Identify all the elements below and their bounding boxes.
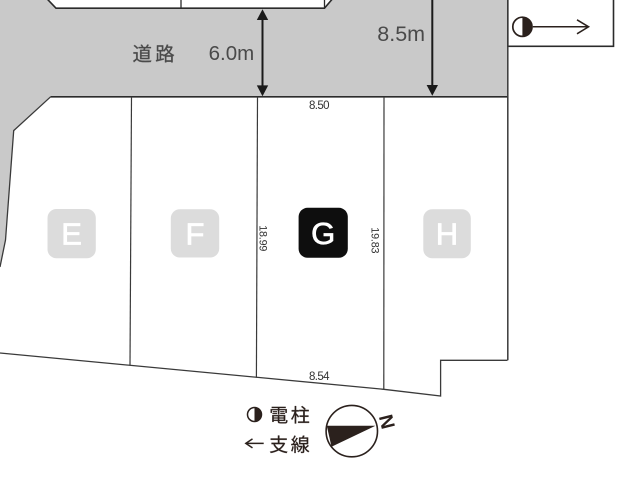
svg-text:18.99: 18.99 xyxy=(257,225,269,251)
svg-text:G: G xyxy=(311,216,335,251)
svg-text:E: E xyxy=(61,217,82,252)
svg-text:19.83: 19.83 xyxy=(369,227,381,253)
svg-text:6.0m: 6.0m xyxy=(209,42,255,65)
svg-text:8.50: 8.50 xyxy=(309,100,329,112)
svg-text:8.54: 8.54 xyxy=(309,371,330,383)
svg-text:H: H xyxy=(436,217,458,252)
svg-text:8.5m: 8.5m xyxy=(377,22,425,46)
svg-text:F: F xyxy=(186,217,205,252)
